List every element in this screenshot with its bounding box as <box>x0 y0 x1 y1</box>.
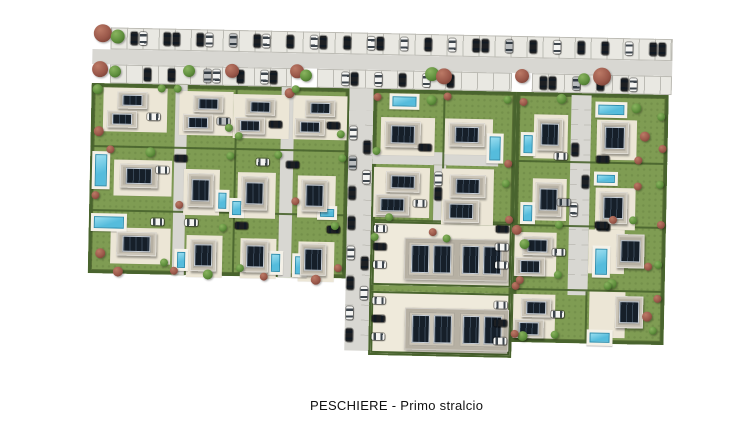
car <box>286 161 299 168</box>
house-roof <box>305 99 335 117</box>
car <box>147 113 160 120</box>
car <box>351 72 358 85</box>
car <box>658 43 665 56</box>
red-tree <box>515 69 529 83</box>
car <box>368 37 375 50</box>
red-tree <box>260 273 268 281</box>
swimming-pool <box>520 132 535 156</box>
car <box>204 69 211 82</box>
house-roof <box>107 110 137 128</box>
house-roof <box>521 298 551 318</box>
car <box>350 126 357 139</box>
red-tree <box>94 24 112 42</box>
house-roof <box>449 122 485 147</box>
car <box>434 187 441 200</box>
roof-panel <box>526 301 547 314</box>
roof-panel <box>246 246 264 267</box>
car <box>571 143 578 156</box>
car <box>254 34 261 47</box>
car <box>213 70 220 83</box>
car <box>595 222 608 229</box>
house-roof <box>449 175 485 199</box>
site-plan-canvas: PESCHIERE - Primo stralcio <box>0 0 750 425</box>
roof-panel <box>123 236 151 252</box>
pool-water <box>218 193 226 209</box>
car <box>347 276 354 289</box>
car <box>185 219 198 226</box>
car <box>347 246 354 259</box>
car <box>625 42 632 55</box>
green-tree <box>203 269 213 279</box>
car <box>371 333 384 340</box>
house-roof <box>301 179 328 212</box>
swimming-pool <box>592 246 611 278</box>
red-tree <box>311 275 321 285</box>
house-roof <box>615 296 644 329</box>
car <box>530 40 537 53</box>
pool-water <box>489 136 501 160</box>
pool-water <box>392 96 416 107</box>
green-tree <box>331 222 339 230</box>
car <box>570 203 577 216</box>
roof-panel <box>391 175 414 189</box>
house-roof <box>536 118 563 151</box>
car <box>360 287 367 300</box>
roof-panel <box>305 185 323 206</box>
house-roof <box>116 232 156 257</box>
car <box>375 73 382 86</box>
pool-water <box>523 205 532 221</box>
pool-water <box>232 201 241 215</box>
car <box>554 41 561 54</box>
car <box>345 328 352 341</box>
green-tree <box>158 84 166 92</box>
car <box>327 122 340 129</box>
car <box>287 35 294 48</box>
roof-panel <box>520 260 541 273</box>
roof-panel <box>621 240 641 263</box>
red-tree <box>92 61 108 77</box>
red-tree <box>657 221 665 229</box>
swimming-pool <box>594 172 618 186</box>
car <box>557 199 570 206</box>
swimming-pool <box>268 251 283 275</box>
roof-panel <box>411 315 429 343</box>
house-roof <box>241 176 268 211</box>
pool-water <box>271 254 280 272</box>
car <box>494 319 507 326</box>
roof-panel <box>245 182 263 205</box>
car <box>164 32 171 45</box>
pool-water <box>523 135 532 153</box>
house-roof <box>187 173 214 208</box>
car <box>320 36 327 49</box>
car <box>373 261 386 268</box>
car <box>554 153 567 160</box>
roof-panel <box>619 302 639 324</box>
car <box>173 33 180 46</box>
roof-panel <box>527 239 548 252</box>
car <box>206 33 213 46</box>
roof-panel <box>381 198 404 212</box>
swimming-pool <box>520 202 535 224</box>
pool-water <box>595 249 608 275</box>
car <box>144 68 151 81</box>
pool-water <box>598 105 624 116</box>
swimming-pool <box>389 93 419 110</box>
roof-panel <box>122 95 143 107</box>
car <box>596 156 609 163</box>
swimming-pool <box>486 133 504 163</box>
roof-panel <box>454 127 479 143</box>
car <box>495 261 508 268</box>
car <box>372 297 385 304</box>
house-roof <box>443 199 479 223</box>
car <box>269 121 282 128</box>
car <box>377 37 384 50</box>
duplex-unit <box>408 312 454 347</box>
car <box>495 243 508 250</box>
car <box>482 39 489 52</box>
car <box>413 200 426 207</box>
car <box>230 34 237 47</box>
roof-panel <box>310 102 331 114</box>
car <box>374 225 387 232</box>
car <box>577 41 584 54</box>
roof-panel <box>433 315 451 343</box>
swimming-pool <box>91 213 127 232</box>
car <box>399 73 406 86</box>
car <box>435 172 442 185</box>
car <box>361 257 368 270</box>
car <box>270 71 277 84</box>
car <box>197 33 204 46</box>
car <box>582 175 589 188</box>
car <box>363 141 370 154</box>
car <box>449 38 456 51</box>
roof-panel <box>250 101 271 113</box>
roof-panel <box>605 127 625 149</box>
roof-panel <box>198 98 219 110</box>
car <box>401 37 408 50</box>
car <box>621 78 628 91</box>
duplex-roof <box>404 238 509 282</box>
car <box>551 311 564 318</box>
car <box>346 306 353 319</box>
red-tree <box>113 266 123 276</box>
swimming-pool <box>586 329 612 346</box>
car <box>363 171 370 184</box>
plan-caption: PESCHIERE - Primo stralcio <box>310 398 483 413</box>
house-roof <box>245 98 275 116</box>
swimming-pool <box>92 151 111 189</box>
pool-water <box>589 332 609 342</box>
car <box>235 222 248 229</box>
roof-panel <box>126 168 152 184</box>
car <box>549 77 556 90</box>
car <box>348 216 355 229</box>
car <box>493 337 506 344</box>
roof-panel <box>304 249 322 270</box>
house-roof <box>616 234 645 269</box>
house-roof <box>375 194 409 216</box>
house-roof <box>295 118 325 136</box>
house-roof <box>386 171 420 193</box>
car <box>311 36 318 49</box>
house-roof <box>190 239 217 272</box>
duplex-unit <box>408 242 454 277</box>
car <box>261 71 268 84</box>
car <box>496 225 509 232</box>
roof-panel <box>461 246 479 274</box>
car <box>140 32 147 45</box>
masterplan <box>86 25 673 377</box>
roof-panel <box>390 126 415 144</box>
car <box>540 76 547 89</box>
roof-panel <box>188 117 209 129</box>
house-roof <box>117 92 147 110</box>
green-tree <box>300 69 312 81</box>
car <box>473 39 480 52</box>
house-roof <box>385 121 422 148</box>
pool-water <box>95 154 108 186</box>
roof-panel <box>462 316 480 344</box>
car <box>373 243 386 250</box>
car <box>630 78 637 91</box>
car <box>151 218 164 225</box>
roof-panel <box>194 245 212 266</box>
green-tree <box>338 154 346 162</box>
car <box>418 144 431 151</box>
car <box>342 72 349 85</box>
car <box>348 186 355 199</box>
pool-water <box>177 252 185 268</box>
car <box>601 42 608 55</box>
house-roof <box>120 164 158 189</box>
roof-panel <box>240 120 261 132</box>
duplex-roof <box>404 308 509 352</box>
car <box>344 36 351 49</box>
pool-water <box>597 175 615 183</box>
roof-panel <box>433 245 451 273</box>
car <box>131 32 138 45</box>
house-roof <box>300 243 327 276</box>
roof-panel <box>191 179 209 202</box>
roof-panel <box>541 124 559 145</box>
car <box>168 69 175 82</box>
car <box>256 158 269 165</box>
car <box>506 40 513 53</box>
roof-panel <box>455 179 480 195</box>
car <box>263 35 270 48</box>
car <box>349 156 356 169</box>
car <box>372 315 385 322</box>
roof-panel <box>411 245 429 273</box>
house-roof <box>600 122 629 155</box>
car <box>552 249 565 256</box>
car <box>156 166 169 173</box>
roof-panel <box>112 113 133 125</box>
house-roof <box>515 257 545 277</box>
car <box>425 38 432 51</box>
car <box>174 155 187 162</box>
roof-panel <box>539 188 557 211</box>
pool-water <box>94 216 124 229</box>
swimming-pool <box>215 190 229 212</box>
red-tree <box>519 98 527 106</box>
swimming-pool <box>595 102 627 119</box>
roof-panel <box>300 121 321 133</box>
car <box>494 301 507 308</box>
house-roof <box>183 114 213 132</box>
green-tree <box>443 234 451 242</box>
house-roof <box>242 240 269 273</box>
house-roof <box>193 95 223 113</box>
car <box>649 43 656 56</box>
roof-panel <box>449 203 474 219</box>
